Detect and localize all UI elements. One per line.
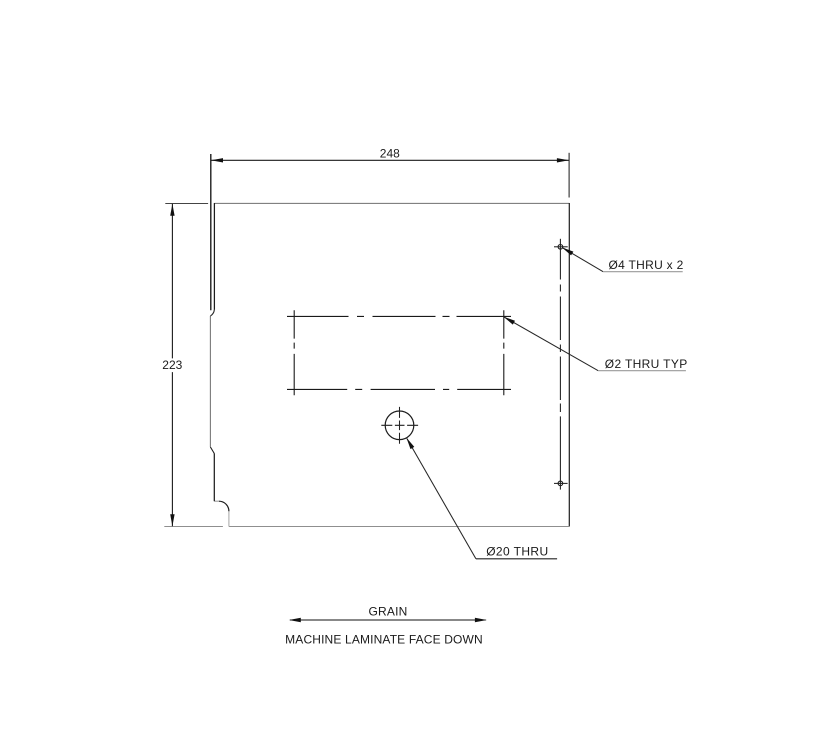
svg-text:Ø2 THRU TYP: Ø2 THRU TYP xyxy=(605,357,688,371)
svg-text:248: 248 xyxy=(380,146,400,160)
svg-text:MACHINE LAMINATE FACE DOWN: MACHINE LAMINATE FACE DOWN xyxy=(285,633,483,647)
svg-text:GRAIN: GRAIN xyxy=(368,605,407,619)
svg-text:223: 223 xyxy=(162,358,182,372)
svg-text:Ø20 THRU: Ø20 THRU xyxy=(486,545,548,559)
svg-text:Ø4 THRU x 2: Ø4 THRU x 2 xyxy=(609,258,684,272)
